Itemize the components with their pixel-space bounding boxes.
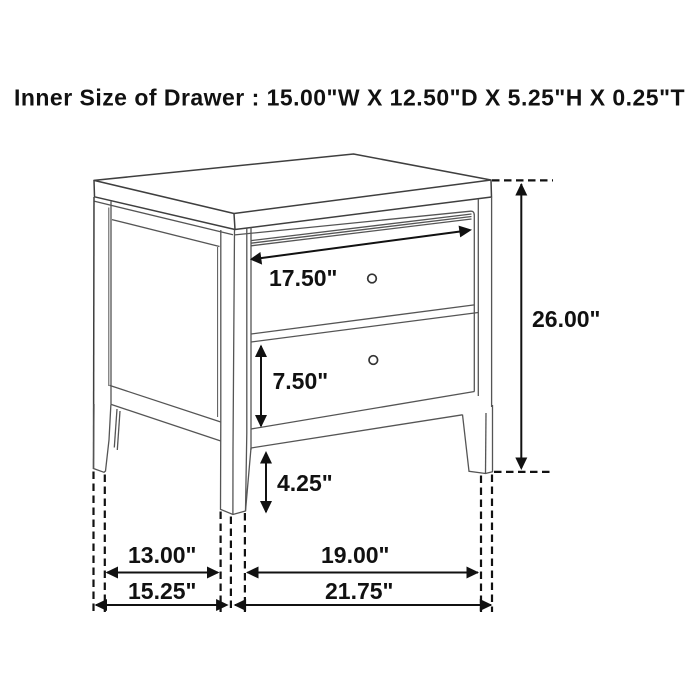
svg-text:19.00": 19.00"	[321, 542, 389, 568]
svg-text:26.00": 26.00"	[532, 306, 600, 332]
svg-text:13.00": 13.00"	[128, 542, 196, 568]
svg-text:Inner Size of Drawer : 15.00"W: Inner Size of Drawer : 15.00"W X 12.50"D…	[14, 85, 685, 111]
svg-text:15.25": 15.25"	[128, 578, 196, 604]
svg-text:4.25": 4.25"	[277, 470, 333, 496]
svg-text:17.50": 17.50"	[269, 265, 337, 291]
svg-text:7.50": 7.50"	[273, 368, 329, 394]
svg-text:21.75": 21.75"	[325, 578, 393, 604]
